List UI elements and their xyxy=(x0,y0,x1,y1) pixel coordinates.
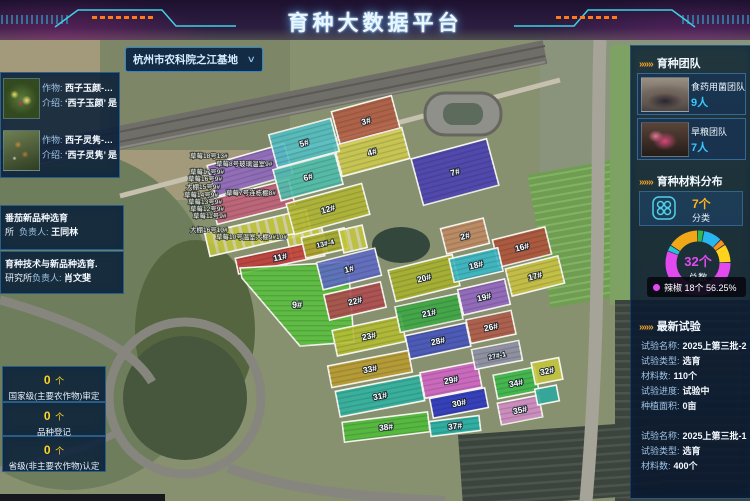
crop-intro: ‘西子玉颜’ 是… xyxy=(65,98,118,108)
project-card[interactable]: 育种技术与新品种选育. 研究所负责人: 肖文斐 xyxy=(0,251,124,294)
intro-label: 介绍: xyxy=(42,98,63,108)
project-org: 研究所 xyxy=(5,273,32,283)
section-header-experiments: »»»最新试验 xyxy=(639,318,701,334)
stat-unit: 个 xyxy=(55,412,64,422)
category-count-box[interactable]: 7个 分类 xyxy=(639,191,743,226)
page-title: 育种大数据平台 xyxy=(0,7,750,37)
crop-label: 作物: xyxy=(42,135,63,145)
section-title: 最新试验 xyxy=(657,321,701,333)
intro-label: 介绍: xyxy=(42,150,63,160)
breeding-dashboard: 11#9#12#13#-41#22#23#33#31#38#20#21#28#2… xyxy=(0,0,750,501)
stat-value: 0 xyxy=(44,409,51,423)
parcel-7#[interactable]: 7# xyxy=(411,139,499,206)
greenhouse-tiny-label: 草莓16号9# xyxy=(188,174,222,183)
team-count: 7人 xyxy=(691,139,708,155)
stat-value: 0 xyxy=(44,443,51,457)
crop-photo-orchid-yellow xyxy=(3,78,40,119)
section-chevrons-icon: »»» xyxy=(639,59,653,70)
greenhouse-tiny-label: 草莓18号13# xyxy=(190,151,228,160)
team-name: 旱粮团队 xyxy=(691,125,727,138)
section-title: 育种团队 xyxy=(657,58,701,70)
project-title: 番茄新品种选育 xyxy=(5,211,123,225)
experiment-field: 试验类型:选育 xyxy=(641,354,701,368)
project-card[interactable]: 番茄新品种选育 所 负责人: 王同林 xyxy=(0,205,124,250)
project-org: 所 xyxy=(5,227,14,237)
leader-label: 负责人: xyxy=(19,227,49,237)
parcel-34#[interactable]: 34# xyxy=(493,367,539,399)
experiment-field: 试验名称:2025上第三批-2 xyxy=(641,339,747,353)
greenhouse-tiny-label: 草莓17号9# xyxy=(190,167,224,176)
crop-variety-panel: 作物: 西子玉颜-… 介绍: ‘西子玉颜’ 是… 作物: 西子灵隽-… 介绍: … xyxy=(0,72,120,178)
tooltip-text: 辣椒 18个 56.25% xyxy=(664,281,737,294)
parcel-18#[interactable]: 18# xyxy=(449,248,503,283)
parcel-26#[interactable]: 26# xyxy=(466,310,516,343)
right-sidebar: »»»育种团队 食药用菌团队 9人 旱粮团队 7人 »»»育种材料分布 7个 分… xyxy=(630,45,750,499)
crop-label: 作物: xyxy=(42,83,63,93)
greenhouse-tiny-label: 大棚15号9# xyxy=(186,182,220,191)
section-header-materials: »»»育种材料分布 xyxy=(639,173,723,189)
crop-card[interactable]: 作物: 西子灵隽-… 介绍: ‘西子灵隽’ 是… xyxy=(1,130,119,176)
stat-label: 省级(非主要农作物)认定 xyxy=(3,460,105,472)
greenhouse-tiny-label: 草莓11号9# xyxy=(193,211,227,220)
stat-label: 国家级(主要农作物)审定 xyxy=(3,390,105,402)
stat-value: 0 xyxy=(44,373,51,387)
base-selector-value: 杭州市农科院之江基地 xyxy=(133,52,238,67)
stat-provincial-recognition[interactable]: 0 个 省级(非主要农作物)认定 xyxy=(2,436,106,472)
team-photo-plant xyxy=(641,122,689,157)
parcel-2#[interactable]: 2# xyxy=(441,218,490,254)
section-chevrons-icon: »»» xyxy=(639,322,653,333)
greenhouse-tiny-label: 草莓8号玻璃温室9# xyxy=(216,159,273,168)
parcel-38#[interactable]: 38# xyxy=(342,412,430,442)
greenhouse-tiny-label: 草莓14号9# xyxy=(184,190,218,199)
experiment-field: 试验名称:2025上第三批-1 xyxy=(641,429,747,443)
parcel-label: 38# xyxy=(378,421,394,433)
stat-national-approval[interactable]: 0 个 国家级(主要农作物)审定 xyxy=(2,366,106,402)
parcel-27#-1[interactable]: 27#-1 xyxy=(472,341,523,370)
crop-name: 西子灵隽-… xyxy=(65,135,113,145)
crop-card[interactable]: 作物: 西子玉颜-… 介绍: ‘西子玉颜’ 是… xyxy=(1,78,119,124)
experiment-field: 种植面积:0亩 xyxy=(641,399,697,413)
parcel-37#[interactable]: 37# xyxy=(429,416,480,437)
section-header-teams: »»»育种团队 xyxy=(639,55,701,71)
leader-name: 王同林 xyxy=(51,227,78,237)
category-icon xyxy=(652,196,676,220)
donut-tooltip: 辣椒 18个 56.25% xyxy=(647,277,746,297)
parcel-p36[interactable] xyxy=(535,385,560,405)
project-title: 育种技术与新品种选育. xyxy=(5,257,123,271)
stat-variety-registration[interactable]: 0 个 品种登记 xyxy=(2,402,106,436)
experiment-field: 试验进度:试验中 xyxy=(641,384,710,398)
base-selector-dropdown[interactable]: 杭州市农科院之江基地 ∨ xyxy=(125,47,263,72)
leader-name: 肖文斐 xyxy=(64,273,91,283)
section-chevrons-icon: »»» xyxy=(639,177,653,188)
greenhouse-tiny-label: 草莓10号温室大棚9#10# xyxy=(216,232,287,241)
experiment-field: 材料数:400个 xyxy=(641,459,698,473)
categories-count: 7个 xyxy=(692,195,711,212)
leader-label: 负责人: xyxy=(32,273,62,283)
crop-photo-orchid-brown xyxy=(3,130,40,171)
top-header-bar: 育种大数据平台 xyxy=(0,0,750,40)
experiment-field: 材料数:110个 xyxy=(641,369,697,383)
parcel-strip-beds-d[interactable] xyxy=(339,225,368,253)
parcel-19#[interactable]: 19# xyxy=(458,279,511,315)
team-name: 食药用菌团队 xyxy=(691,80,745,93)
stat-unit: 个 xyxy=(55,376,64,386)
materials-total: 32个 xyxy=(668,251,728,270)
team-card[interactable]: 旱粮团队 7人 xyxy=(637,118,746,160)
team-photo-group xyxy=(641,77,689,112)
parcel-label: 9# xyxy=(292,300,302,310)
greenhouse-tiny-label: 草莓7号连栋棚8# xyxy=(226,188,276,197)
chevron-down-icon: ∨ xyxy=(247,54,256,65)
stat-unit: 个 xyxy=(55,446,64,456)
team-count: 9人 xyxy=(691,94,708,110)
experiment-field: 试验类型:选育 xyxy=(641,444,701,458)
section-title: 育种材料分布 xyxy=(657,176,723,188)
parcel-32#[interactable]: 32# xyxy=(531,358,563,385)
crop-intro: ‘西子灵隽’ 是… xyxy=(65,150,118,160)
greenhouse-tiny-label: 草莓12号9# xyxy=(190,204,224,213)
greenhouse-tiny-label: 大棚16号10# xyxy=(190,225,228,234)
greenhouse-tiny-label: 草莓13号9# xyxy=(188,197,222,206)
crop-name: 西子玉颜-… xyxy=(65,83,113,93)
parcel-label: 37# xyxy=(447,420,463,432)
legend-dot-pepper xyxy=(653,284,660,291)
team-card[interactable]: 食药用菌团队 9人 xyxy=(637,73,746,115)
